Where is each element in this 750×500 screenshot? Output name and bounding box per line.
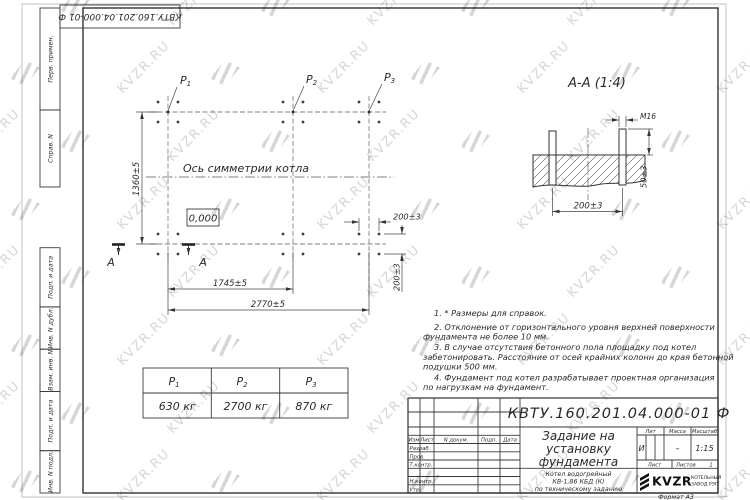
point-label-p1: P1 (180, 74, 191, 88)
dim-200-horizontal: 200±3 (344, 212, 421, 232)
format-label: Формат А3 (658, 494, 694, 500)
anchor-bolt-left (549, 131, 556, 185)
anchor-bolt-right (619, 129, 626, 185)
lit-mass-scale: Лит Масса Масштаб И – 1:15 Лист Листов 1 (637, 427, 718, 468)
dim-200h-text: 200±3 (393, 212, 421, 222)
dim-1360: 1360±5 (132, 112, 158, 244)
header-data: Дата (502, 438, 517, 444)
note-line: 2. Отклонение от горизонтального уровня … (434, 322, 715, 332)
elevation-mark: 0,000 (187, 209, 219, 226)
dim-50-text: 50±3 (639, 166, 649, 189)
row-utv: Утв. (410, 487, 421, 493)
margin-label-sprav-n: Справ. N (48, 134, 55, 163)
table-value-p1: 630 кг (159, 400, 196, 413)
margin-columns: Перв. примен. Справ. N Подп. и дата Инв.… (40, 8, 60, 493)
title-line-3: фундамента (539, 455, 618, 469)
sheets-value: 1 (709, 462, 712, 468)
point-label-p2: P2 (306, 73, 318, 87)
title-line-2: установку (545, 442, 612, 456)
kvzr-logo-icon (640, 473, 649, 491)
margin-label-inv-dubl: Инв. N дубл. (47, 307, 55, 348)
section-letter-left: А (106, 256, 115, 269)
revision-table: Изм Лист N докум. Подп. Дата Разраб. Про… (408, 398, 520, 493)
dim-m16: М16 (606, 112, 656, 127)
lit-header: Лит (644, 429, 656, 435)
note-line: 1. * Размеры для справок. (434, 308, 547, 318)
mass-value: – (675, 443, 679, 453)
anchor-bolts-plan (157, 101, 381, 256)
margin-label-perv-primen: Перв. примен. (48, 35, 55, 82)
row-prov: Пров. (410, 454, 425, 460)
doc-number: КВТУ.160.201.04.000-01 Ф (508, 406, 731, 422)
plan-view: Ось симметрии котла P1 P2 P3 (106, 71, 420, 315)
margin-label-podp-data-1: Подп. и дата (48, 256, 55, 299)
header-izm: Изм (409, 438, 420, 444)
company-logo: KVZR КОТЕЛЬНЫЙ ЗАВОД РЭП (640, 473, 721, 491)
table-value-p3: 870 кг (295, 400, 332, 413)
drawing-sheet: КВТУ.160.201.04.000-01 Ф Перв. примен. С… (0, 0, 750, 500)
elevation-value: 0,000 (189, 214, 218, 225)
technical-drawing: КВТУ.160.201.04.000-01 Ф Перв. примен. С… (0, 0, 750, 500)
dim-1360-text: 1360±5 (132, 162, 142, 196)
section-title: А-А (1:4) (567, 76, 626, 91)
logo-text: KVZR (652, 474, 692, 489)
subtitle-line-3: по техническому заданию (535, 486, 623, 493)
row-nkontr: Н.контр. (410, 479, 434, 485)
drawing-title: Задание на установку фундамента Котел во… (520, 427, 637, 493)
sheet-label: Лист (647, 462, 662, 468)
dim-2770-text: 2770±5 (251, 300, 285, 310)
dim-200-section-text: 200±3 (574, 202, 603, 212)
section-view: А-А (1:4) М16 50±3 200±3 (533, 76, 656, 216)
row-tkontr: Т.контр. (410, 463, 433, 469)
table-value-p2: 2700 кг (224, 400, 268, 413)
section-letter-right: А (198, 256, 207, 269)
title-block: Изм Лист N докум. Подп. Дата Разраб. Про… (408, 398, 730, 500)
table-header-p3: P3 (305, 375, 316, 389)
point-label-p3: P3 (384, 71, 395, 85)
dim-1745: 1745±5 (168, 252, 293, 294)
dim-1745-text: 1745±5 (213, 279, 247, 289)
row-razrab: Разраб. (410, 446, 431, 452)
dim-200-vertical: 200±3 (384, 225, 406, 292)
dim-200-section: 200±3 (553, 188, 623, 216)
dim-2770: 2770±5 (168, 252, 369, 315)
note-line: по нагрузкам на фундамент. (423, 382, 549, 392)
table-header-p1: P1 (168, 375, 179, 389)
thread-label: М16 (640, 112, 656, 121)
title-line-1: Задание на (542, 429, 615, 443)
notes: 1. * Размеры для справок. 2. Отклонение … (423, 308, 734, 392)
lit-value: И (638, 443, 644, 453)
section-cut-marks: А А (106, 245, 207, 270)
header-ndoc: N докум. (444, 438, 469, 444)
note-line: 4. Фундамент под котел разрабатывает про… (434, 373, 715, 383)
margin-label-podp-data-2: Подп. и дата (48, 399, 55, 442)
logo-sub-2: ЗАВОД РЭП (691, 482, 718, 488)
margin-label-vzam-inv: Взам. инв. N (48, 350, 55, 391)
mass-header: Масса (669, 429, 686, 435)
sheets-label: Листов (675, 462, 696, 468)
subtitle-line-1: Котел водогрейный (545, 471, 611, 478)
note-line: забетонировать. Расстояние от осей крайн… (423, 352, 734, 362)
scale-value: 1:15 (695, 443, 713, 453)
load-point-labels: P1 P2 P3 (167, 71, 396, 114)
logo-sub-1: КОТЕЛЬНЫЙ (691, 474, 721, 481)
table-header-p2: P2 (236, 375, 248, 389)
axis-label: Ось симметрии котла (183, 162, 309, 175)
plan-centerlines (146, 96, 394, 298)
margin-label-inv-podl: Инв. N подл. (48, 451, 55, 493)
note-line: фундамента не более 10 мм. (423, 332, 549, 342)
header-list: Лист (419, 438, 434, 444)
subtitle-line-2: КВ-1,86 КБД (К) (552, 479, 604, 486)
note-line: подушки 500 мм. (423, 362, 497, 372)
note-line: 3. В случае отсутствия бетонного пола пл… (434, 342, 696, 352)
loads-table: P1 P2 P3 630 кг 2700 кг 870 кг (143, 368, 348, 418)
scale-header: Масштаб (692, 429, 718, 435)
dim-200v-text: 200±3 (392, 263, 402, 291)
header-podp: Подп. (481, 438, 497, 444)
top-stamp-doc-number: КВТУ.160.201.04.000-01 Ф (58, 11, 182, 21)
